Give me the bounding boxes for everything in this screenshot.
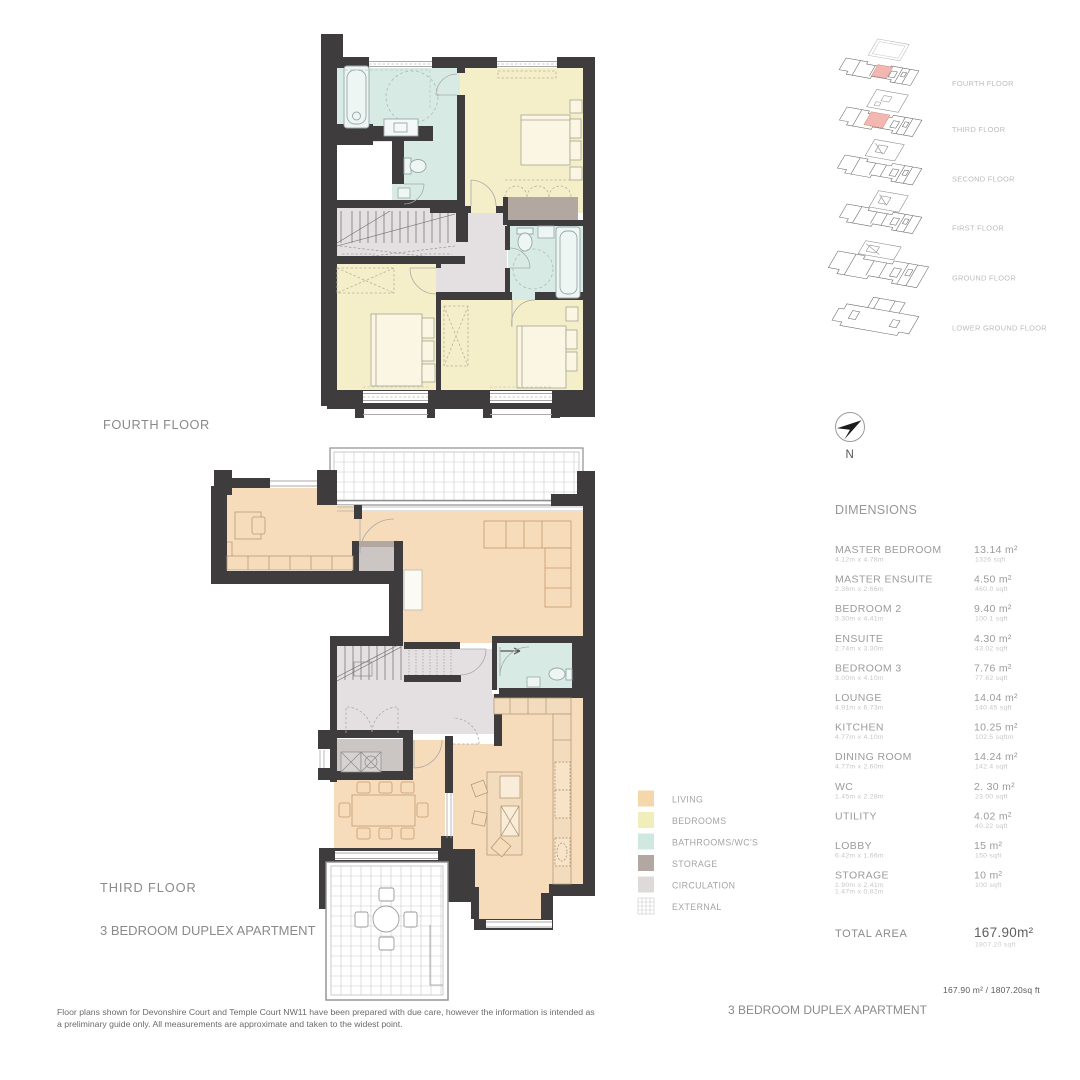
svg-text:MASTER ENSUITE: MASTER ENSUITE	[835, 574, 933, 586]
svg-text:LOBBY: LOBBY	[835, 840, 872, 852]
svg-text:ENSUITE: ENSUITE	[835, 633, 883, 645]
svg-text:GROUND FLOOR: GROUND FLOOR	[952, 274, 1016, 283]
svg-text:Floor plans shown for Devonshi: Floor plans shown for Devonshire Court a…	[57, 1007, 595, 1017]
svg-text:DIMENSIONS: DIMENSIONS	[835, 503, 917, 517]
svg-text:THIRD FLOOR: THIRD FLOOR	[100, 880, 197, 895]
svg-text:4.12m x 4.78m: 4.12m x 4.78m	[835, 557, 884, 564]
svg-text:N: N	[846, 449, 854, 461]
svg-text:4.30 m²: 4.30 m²	[974, 633, 1012, 645]
svg-text:STORAGE: STORAGE	[672, 859, 718, 869]
svg-text:100.1 sqft: 100.1 sqft	[975, 616, 1008, 623]
svg-text:10 m²: 10 m²	[974, 870, 1003, 882]
svg-text:460.0 sqft: 460.0 sqft	[975, 586, 1008, 593]
svg-text:3.00m x 4.10m: 3.00m x 4.10m	[835, 675, 884, 682]
svg-text:THIRD FLOOR: THIRD FLOOR	[952, 125, 1005, 134]
svg-text:FOURTH FLOOR: FOURTH FLOOR	[952, 79, 1014, 88]
svg-text:LOUNGE: LOUNGE	[835, 692, 882, 704]
svg-text:a preliminary guide only. All: a preliminary guide only. All measuremen…	[57, 1019, 403, 1029]
svg-text:140.45 sqft: 140.45 sqft	[975, 705, 1012, 712]
svg-text:DINING ROOM: DINING ROOM	[835, 751, 912, 763]
svg-text:10.25 m²: 10.25 m²	[974, 722, 1018, 734]
svg-text:1326 sqft: 1326 sqft	[975, 557, 1006, 564]
svg-text:1807.20 sqft: 1807.20 sqft	[975, 942, 1016, 949]
svg-text:2.74m x 3.30m: 2.74m x 3.30m	[835, 645, 884, 652]
svg-text:4.50 m²: 4.50 m²	[974, 574, 1012, 586]
svg-text:SECOND FLOOR: SECOND FLOOR	[952, 175, 1015, 184]
svg-text:LOWER GROUND FLOOR: LOWER GROUND FLOOR	[952, 324, 1047, 333]
svg-text:STORAGE: STORAGE	[835, 870, 889, 882]
svg-text:167.90m²: 167.90m²	[974, 925, 1034, 940]
svg-text:13.14 m²: 13.14 m²	[974, 544, 1018, 556]
svg-text:7.76 m²: 7.76 m²	[974, 662, 1012, 674]
svg-text:3.30m x 4.41m: 3.30m x 4.41m	[835, 616, 884, 623]
svg-text:15 m²: 15 m²	[974, 840, 1003, 852]
svg-text:23.00 sqft: 23.00 sqft	[975, 793, 1008, 800]
svg-text:BATHROOMS/WC'S: BATHROOMS/WC'S	[672, 838, 758, 848]
svg-text:FOURTH FLOOR: FOURTH FLOOR	[103, 417, 210, 432]
svg-text:CIRCULATION: CIRCULATION	[672, 881, 735, 891]
svg-text:1.45m x 2.28m: 1.45m x 2.28m	[835, 793, 884, 800]
svg-text:14.04 m²: 14.04 m²	[974, 692, 1018, 704]
svg-text:4.02 m²: 4.02 m²	[974, 810, 1012, 822]
svg-text:UTILITY: UTILITY	[835, 810, 877, 822]
svg-text:3 BEDROOM DUPLEX APARTMENT: 3 BEDROOM DUPLEX APARTMENT	[100, 923, 316, 938]
svg-text:EXTERNAL: EXTERNAL	[672, 902, 722, 912]
svg-text:142.4 sqft: 142.4 sqft	[975, 764, 1008, 771]
svg-text:102.5 sqftm: 102.5 sqftm	[975, 734, 1014, 741]
svg-text:167.90 m² / 1807.20sq ft: 167.90 m² / 1807.20sq ft	[943, 985, 1040, 995]
svg-text:43.02 sqft: 43.02 sqft	[975, 645, 1008, 652]
svg-text:KITCHEN: KITCHEN	[835, 722, 884, 734]
svg-text:77.62 sqft: 77.62 sqft	[975, 675, 1008, 682]
svg-text:40.22 sqft: 40.22 sqft	[975, 823, 1008, 830]
svg-text:9.40 m²: 9.40 m²	[974, 603, 1012, 615]
svg-text:2. 30 m²: 2. 30 m²	[974, 781, 1015, 793]
svg-text:WC: WC	[835, 781, 853, 793]
svg-text:3 BEDROOM DUPLEX APARTMENT: 3 BEDROOM DUPLEX APARTMENT	[728, 1003, 928, 1017]
svg-text:LIVING: LIVING	[672, 795, 703, 805]
svg-text:BEDROOMS: BEDROOMS	[672, 816, 727, 826]
svg-text:4.77m x 4.10m: 4.77m x 4.10m	[835, 734, 884, 741]
svg-text:BEDROOM 2: BEDROOM 2	[835, 603, 902, 615]
svg-text:6.42m x 1.66m: 6.42m x 1.66m	[835, 853, 884, 860]
svg-text:1.47m x 0.82m: 1.47m x 0.82m	[835, 889, 884, 896]
svg-text:14.24 m²: 14.24 m²	[974, 751, 1018, 763]
svg-text:FIRST FLOOR: FIRST FLOOR	[952, 224, 1004, 233]
svg-text:BEDROOM 3: BEDROOM 3	[835, 662, 902, 674]
svg-text:TOTAL AREA: TOTAL AREA	[835, 928, 907, 940]
svg-text:100 sqft: 100 sqft	[975, 882, 1002, 889]
svg-text:4.77m x 2.60m: 4.77m x 2.60m	[835, 764, 884, 771]
svg-text:4.91m x 6.73m: 4.91m x 6.73m	[835, 705, 884, 712]
svg-text:150 sqft: 150 sqft	[975, 853, 1002, 860]
svg-text:MASTER BEDROOM: MASTER BEDROOM	[835, 544, 942, 556]
svg-text:2.36m x 2.66m: 2.36m x 2.66m	[835, 586, 884, 593]
